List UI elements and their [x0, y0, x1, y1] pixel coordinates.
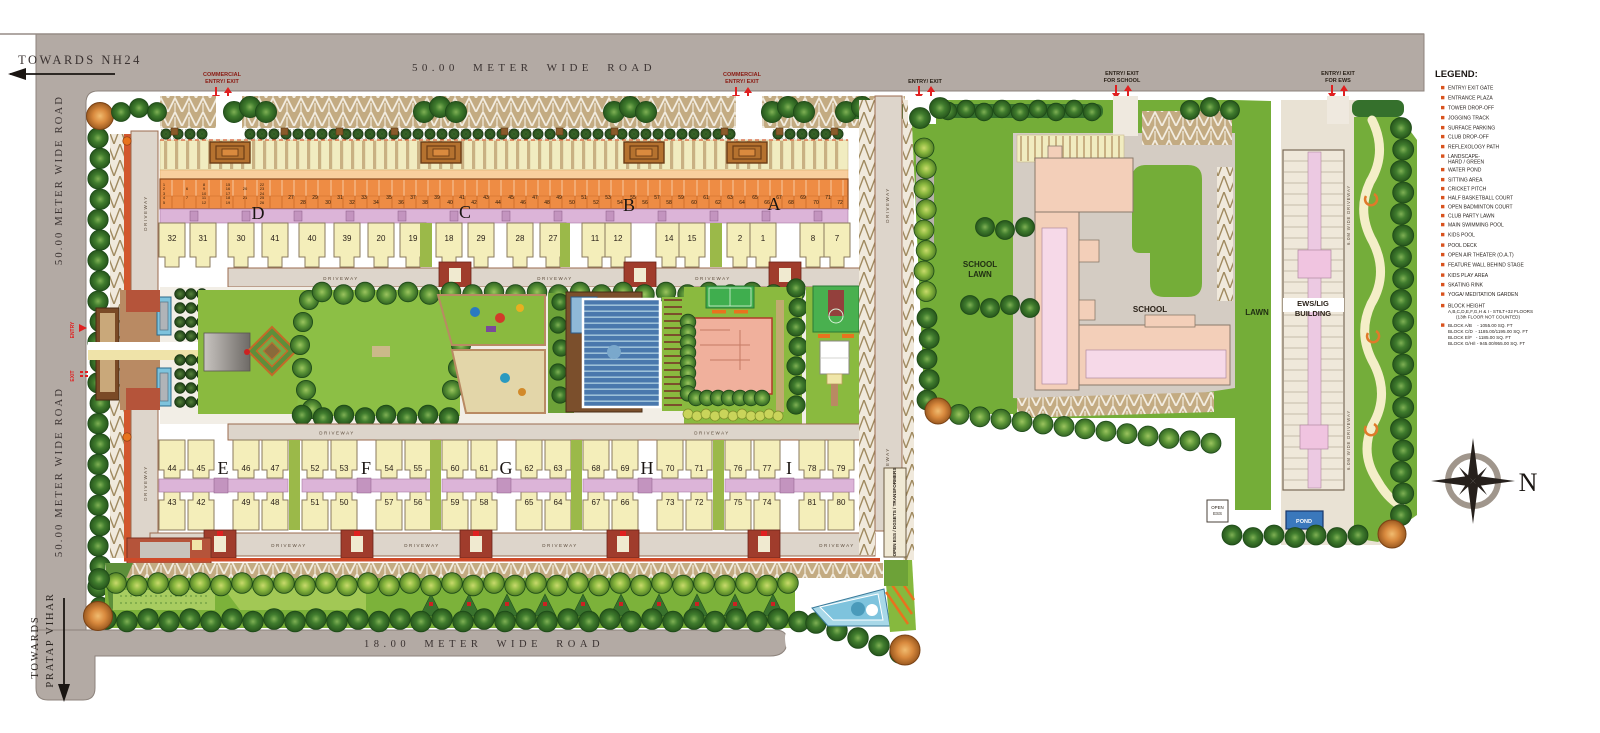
svg-text:68: 68 — [592, 464, 601, 473]
svg-text:80: 80 — [837, 498, 846, 507]
svg-text:59: 59 — [678, 195, 684, 201]
svg-text:51: 51 — [581, 195, 587, 201]
svg-text:D: D — [252, 203, 265, 223]
svg-text:42: 42 — [197, 498, 206, 507]
svg-text:64: 64 — [554, 498, 563, 507]
svg-text:8: 8 — [811, 234, 816, 243]
svg-text:I: I — [786, 458, 792, 478]
svg-text:41: 41 — [459, 195, 465, 201]
svg-text:CRICKET PITCH: CRICKET PITCH — [1448, 187, 1487, 193]
svg-text:31: 31 — [337, 195, 343, 201]
svg-text:33: 33 — [361, 195, 367, 201]
svg-text:28: 28 — [300, 200, 306, 206]
svg-text:WATER POND: WATER POND — [1448, 168, 1482, 174]
svg-text:56: 56 — [414, 498, 423, 507]
svg-text:18: 18 — [445, 234, 454, 243]
svg-text:EWS/LIG: EWS/LIG — [1297, 299, 1329, 308]
svg-text:BLOCK C/D - 1185.00/1195.00 S: BLOCK C/D - 1185.00/1195.00 SQ. FT — [1448, 329, 1528, 334]
svg-text:B: B — [623, 195, 635, 215]
svg-text:COMMERCIAL: COMMERCIAL — [723, 72, 762, 78]
svg-text:DRIVEWAY: DRIVEWAY — [695, 276, 731, 281]
svg-text:11: 11 — [591, 234, 600, 243]
svg-text:SKATING RINK: SKATING RINK — [1448, 283, 1484, 289]
svg-text:35: 35 — [386, 195, 392, 201]
svg-text:70: 70 — [813, 200, 819, 206]
svg-text:HARD / GREEN: HARD / GREEN — [1448, 160, 1485, 166]
svg-text:32: 32 — [349, 200, 355, 206]
svg-text:46: 46 — [520, 200, 526, 206]
svg-text:59: 59 — [451, 498, 460, 507]
svg-text:BLOCK G/H/I - 945.00/955.00 S: BLOCK G/H/I - 945.00/955.00 SQ. FT — [1448, 341, 1525, 346]
svg-text:FEATURE WALL BEHIND STAGE: FEATURE WALL BEHIND STAGE — [1448, 263, 1525, 269]
svg-text:78: 78 — [808, 464, 817, 473]
svg-text:KIDS POOL: KIDS POOL — [1448, 233, 1475, 239]
svg-text:1: 1 — [761, 234, 766, 243]
svg-text:62: 62 — [715, 200, 721, 206]
svg-text:TOWARDS: TOWARDS — [30, 615, 41, 678]
svg-text:19: 19 — [409, 234, 418, 243]
svg-text:37: 37 — [410, 195, 416, 201]
svg-text:45: 45 — [508, 195, 514, 201]
svg-text:REFLEXOLOGY PATH: REFLEXOLOGY PATH — [1448, 145, 1500, 151]
svg-text:A: A — [768, 194, 781, 214]
svg-text:38: 38 — [422, 200, 428, 206]
svg-text:51: 51 — [311, 498, 320, 507]
svg-text:73: 73 — [666, 498, 675, 507]
svg-text:ESS: ESS — [1213, 511, 1222, 516]
svg-text:OPEN AIR THEATER (O.A.T): OPEN AIR THEATER (O.A.T) — [1448, 253, 1514, 259]
svg-text:56: 56 — [642, 200, 648, 206]
svg-text:29: 29 — [477, 234, 486, 243]
svg-text:N: N — [1519, 468, 1538, 497]
svg-text:DRIVEWAY: DRIVEWAY — [143, 465, 148, 501]
svg-text:30: 30 — [325, 200, 331, 206]
svg-text:19: 19 — [226, 200, 231, 205]
svg-text:BLOCK E/F - 1185.00 SQ. FT: BLOCK E/F - 1185.00 SQ. FT — [1448, 335, 1511, 340]
svg-text:63: 63 — [727, 195, 733, 201]
svg-text:65: 65 — [525, 498, 534, 507]
svg-text:29: 29 — [312, 195, 318, 201]
svg-text:39: 39 — [343, 234, 352, 243]
svg-text:49: 49 — [242, 498, 251, 507]
svg-text:79: 79 — [837, 464, 846, 473]
svg-text:SITTING AREA: SITTING AREA — [1448, 178, 1483, 184]
svg-text:ENTRY: ENTRY — [70, 321, 76, 338]
svg-text:DRIVEWAY: DRIVEWAY — [819, 543, 855, 548]
svg-text:50.00 METER WIDE ROAD: 50.00 METER WIDE ROAD — [54, 95, 65, 265]
svg-text:50: 50 — [340, 498, 349, 507]
svg-text:DRIVEWAY: DRIVEWAY — [143, 195, 148, 231]
svg-text:81: 81 — [808, 498, 817, 507]
svg-text:72: 72 — [837, 200, 843, 206]
svg-text:44: 44 — [168, 464, 177, 473]
svg-text:2: 2 — [738, 234, 743, 243]
svg-text:53: 53 — [340, 464, 349, 473]
svg-text:76: 76 — [734, 464, 743, 473]
svg-text:48: 48 — [271, 498, 280, 507]
svg-text:50.00 METER WIDE ROAD: 50.00 METER WIDE ROAD — [412, 62, 656, 74]
svg-text:71: 71 — [695, 464, 704, 473]
svg-text:46: 46 — [242, 464, 251, 473]
svg-text:(13th FLOOR NOT COUNTED): (13th FLOOR NOT COUNTED) — [1456, 315, 1520, 320]
svg-text:44: 44 — [495, 200, 501, 206]
svg-text:12: 12 — [614, 234, 623, 243]
svg-text:ENTRY/ EXIT: ENTRY/ EXIT — [205, 79, 239, 85]
svg-text:BLOCK A/B - 1055.00 SQ. FT: BLOCK A/B - 1055.00 SQ. FT — [1448, 323, 1513, 328]
svg-text:28: 28 — [516, 234, 525, 243]
svg-text:ENTRY/ EXIT: ENTRY/ EXIT — [1105, 71, 1139, 77]
svg-text:18.00 METER WIDE ROAD: 18.00 METER WIDE ROAD — [364, 639, 604, 650]
svg-text:47: 47 — [271, 464, 280, 473]
svg-text:68: 68 — [788, 200, 794, 206]
svg-text:SCHOOL: SCHOOL — [963, 260, 997, 269]
svg-text:FOR SCHOOL: FOR SCHOOL — [1104, 78, 1141, 84]
svg-text:BUILDING: BUILDING — [1295, 309, 1331, 318]
svg-text:ENTRANCE PLAZA: ENTRANCE PLAZA — [1448, 96, 1493, 102]
svg-text:DRIVEWAY: DRIVEWAY — [537, 276, 573, 281]
svg-text:20: 20 — [243, 186, 248, 191]
svg-text:77: 77 — [763, 464, 772, 473]
svg-text:63: 63 — [554, 464, 563, 473]
svg-text:C: C — [459, 202, 471, 222]
svg-text:7: 7 — [835, 234, 840, 243]
svg-text:EXIT: EXIT — [70, 370, 76, 381]
svg-text:60: 60 — [691, 200, 697, 206]
svg-text:64: 64 — [739, 200, 745, 206]
svg-text:6.0M WIDE DRIVEWAY: 6.0M WIDE DRIVEWAY — [1346, 185, 1351, 245]
svg-text:55: 55 — [414, 464, 423, 473]
svg-text:CLUB PARTY LAWN: CLUB PARTY LAWN — [1448, 214, 1495, 220]
svg-text:45: 45 — [197, 464, 206, 473]
svg-text:TOWER DROP-OFF: TOWER DROP-OFF — [1448, 106, 1494, 112]
svg-text:69: 69 — [800, 195, 806, 201]
svg-text:66: 66 — [621, 498, 630, 507]
svg-text:MAIN SWIMMING POOL: MAIN SWIMMING POOL — [1448, 223, 1504, 229]
svg-text:58: 58 — [666, 200, 672, 206]
svg-text:49: 49 — [556, 195, 562, 201]
svg-text:34: 34 — [373, 200, 379, 206]
svg-text:SCHOOL: SCHOOL — [1133, 305, 1167, 314]
svg-text:60: 60 — [451, 464, 460, 473]
svg-text:65: 65 — [752, 195, 758, 201]
svg-text:YOGA/ MEDITATION GARDEN: YOGA/ MEDITATION GARDEN — [1448, 292, 1518, 298]
svg-text:ENTRY/ EXIT GATE: ENTRY/ EXIT GATE — [1448, 86, 1494, 92]
svg-text:DRIVEWAY: DRIVEWAY — [885, 187, 890, 223]
svg-text:40: 40 — [447, 200, 453, 206]
svg-text:50.00 METER WIDE ROAD: 50.00 METER WIDE ROAD — [54, 387, 65, 557]
svg-text:COMMERCIAL: COMMERCIAL — [203, 72, 242, 78]
svg-text:H: H — [641, 458, 654, 478]
svg-text:POND: POND — [1296, 519, 1312, 525]
svg-text:61: 61 — [480, 464, 489, 473]
svg-text:DRIVEWAY: DRIVEWAY — [542, 543, 578, 548]
svg-text:30: 30 — [237, 234, 246, 243]
svg-text:JOGGING TRACK: JOGGING TRACK — [1448, 116, 1490, 122]
svg-text:72: 72 — [695, 498, 704, 507]
svg-text:KIDS PLAY AREA: KIDS PLAY AREA — [1448, 273, 1489, 279]
svg-text:53: 53 — [605, 195, 611, 201]
svg-text:58: 58 — [480, 498, 489, 507]
svg-text:HALF BASKETBALL COURT: HALF BASKETBALL COURT — [1448, 196, 1513, 202]
svg-text:75: 75 — [734, 498, 743, 507]
svg-text:48: 48 — [544, 200, 550, 206]
svg-text:E: E — [218, 458, 229, 478]
svg-text:POOL DECK: POOL DECK — [1448, 243, 1478, 249]
svg-text:71: 71 — [825, 195, 831, 201]
svg-text:TOWARDS NH24: TOWARDS NH24 — [18, 53, 142, 67]
svg-text:DRIVEWAY: DRIVEWAY — [694, 431, 730, 436]
svg-text:DRIVEWAY: DRIVEWAY — [271, 543, 307, 548]
svg-text:40: 40 — [308, 234, 317, 243]
svg-text:61: 61 — [703, 195, 709, 201]
svg-text:LAWN: LAWN — [1245, 308, 1269, 317]
svg-text:6.0M WIDE DRIVEWAY: 6.0M WIDE DRIVEWAY — [1346, 410, 1351, 470]
svg-text:69: 69 — [621, 464, 630, 473]
svg-text:39: 39 — [434, 195, 440, 201]
svg-text:DRIVEWAY: DRIVEWAY — [319, 431, 355, 436]
svg-text:PRATAP VIHAR: PRATAP VIHAR — [45, 592, 56, 687]
svg-text:52: 52 — [593, 200, 599, 206]
svg-text:FOR EWS: FOR EWS — [1325, 78, 1351, 84]
svg-text:74: 74 — [763, 498, 772, 507]
svg-text:43: 43 — [483, 195, 489, 201]
svg-text:LAWN: LAWN — [968, 270, 992, 279]
svg-text:DRIVEWAY: DRIVEWAY — [404, 543, 440, 548]
svg-text:12: 12 — [202, 200, 207, 205]
svg-text:14: 14 — [665, 234, 674, 243]
svg-text:LEGEND:: LEGEND: — [1435, 69, 1478, 80]
svg-text:41: 41 — [271, 234, 280, 243]
svg-text:54: 54 — [385, 464, 394, 473]
svg-text:20: 20 — [377, 234, 386, 243]
svg-text:27: 27 — [288, 195, 294, 201]
svg-text:52: 52 — [311, 464, 320, 473]
svg-text:62: 62 — [525, 464, 534, 473]
svg-text:57: 57 — [385, 498, 394, 507]
svg-text:43: 43 — [168, 498, 177, 507]
svg-text:27: 27 — [549, 234, 558, 243]
svg-text:70: 70 — [666, 464, 675, 473]
svg-text:36: 36 — [398, 200, 404, 206]
svg-text:ENTRY/ EXIT: ENTRY/ EXIT — [908, 79, 942, 85]
svg-text:SURFACE PARKING: SURFACE PARKING — [1448, 126, 1495, 132]
svg-text:CLUB DROP-OFF: CLUB DROP-OFF — [1448, 135, 1489, 141]
svg-text:32: 32 — [168, 234, 177, 243]
svg-text:OPEN ESS / DGSETS / TRANSFORME: OPEN ESS / DGSETS / TRANSFORMERS — [892, 468, 897, 557]
svg-text:G: G — [500, 458, 513, 478]
svg-text:DRIVEWAY: DRIVEWAY — [323, 276, 359, 281]
svg-text:OPEN: OPEN — [1211, 505, 1223, 510]
svg-text:67: 67 — [592, 498, 601, 507]
svg-text:OPEN BADMINTON COURT: OPEN BADMINTON COURT — [1448, 205, 1513, 211]
svg-text:57: 57 — [654, 195, 660, 201]
svg-text:31: 31 — [199, 234, 208, 243]
svg-text:47: 47 — [532, 195, 538, 201]
svg-text:21: 21 — [243, 195, 248, 200]
svg-text:15: 15 — [688, 234, 697, 243]
svg-text:ENTRY/ EXIT: ENTRY/ EXIT — [725, 79, 759, 85]
svg-text:ENTRY/ EXIT: ENTRY/ EXIT — [1321, 71, 1355, 77]
svg-text:A,B,C,D,E,F,G,H & I - STILT+32: A,B,C,D,E,F,G,H & I - STILT+32 FLOORS — [1448, 309, 1533, 314]
svg-text:F: F — [361, 458, 371, 478]
svg-text:42: 42 — [471, 200, 477, 206]
svg-text:50: 50 — [569, 200, 575, 206]
